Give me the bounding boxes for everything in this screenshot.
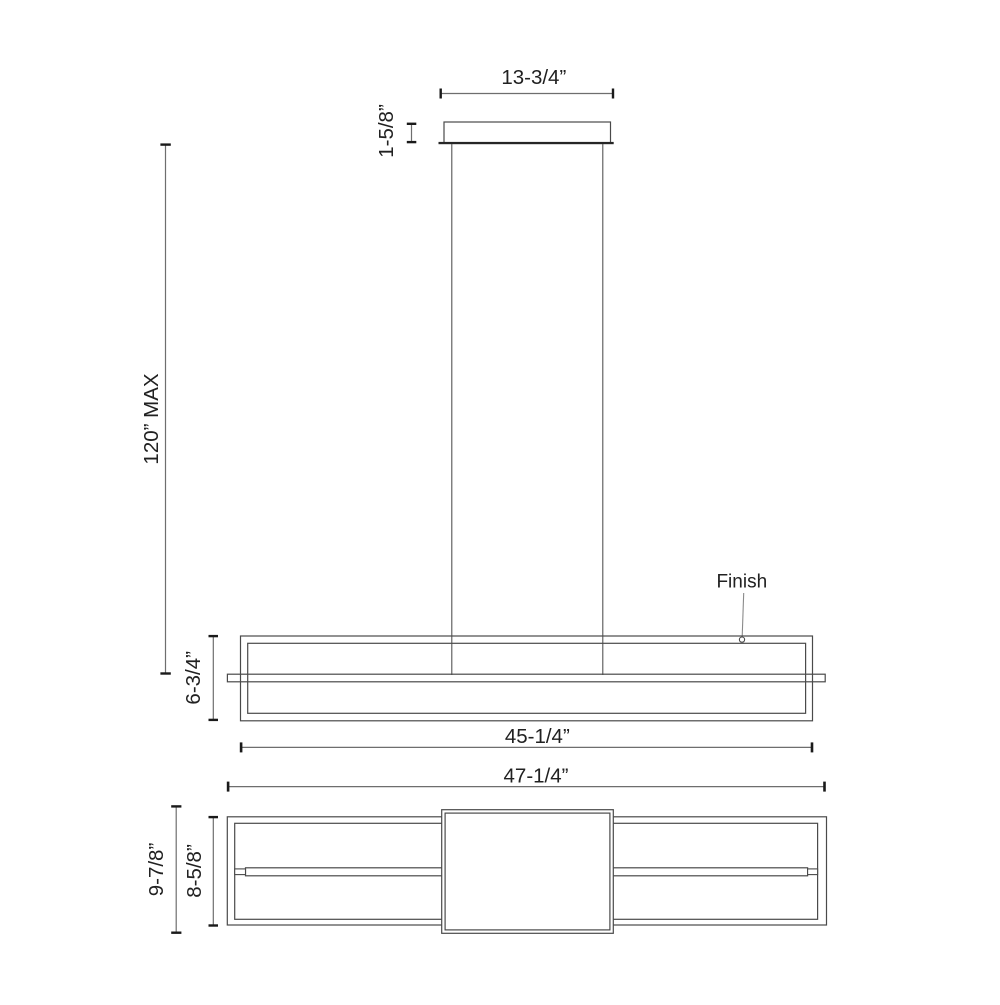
svg-text:Finish: Finish	[716, 571, 767, 592]
svg-text:9-7/8”: 9-7/8”	[145, 843, 168, 897]
svg-text:8-5/8”: 8-5/8”	[183, 844, 206, 898]
svg-text:45-1/4”: 45-1/4”	[505, 725, 570, 748]
svg-text:6-3/4”: 6-3/4”	[182, 651, 205, 705]
svg-text:13-3/4”: 13-3/4”	[501, 66, 566, 89]
svg-text:47-1/4”: 47-1/4”	[504, 764, 569, 787]
svg-text:1-5/8”: 1-5/8”	[375, 104, 398, 158]
svg-text:120” MAX: 120” MAX	[140, 373, 163, 464]
